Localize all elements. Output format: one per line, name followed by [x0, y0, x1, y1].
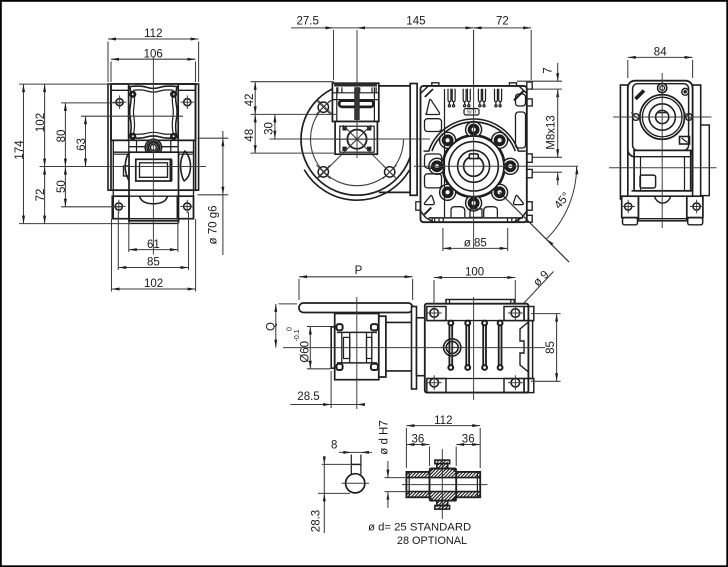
- svg-text:174: 174: [14, 140, 26, 160]
- svg-text:63: 63: [76, 138, 88, 151]
- svg-text:28.3: 28.3: [311, 510, 323, 532]
- svg-text:30: 30: [264, 122, 276, 135]
- svg-text:0: 0: [287, 327, 294, 331]
- svg-text:72: 72: [496, 15, 509, 27]
- svg-text:84: 84: [654, 47, 667, 59]
- svg-text:8: 8: [331, 440, 337, 452]
- svg-text:112: 112: [434, 415, 452, 427]
- svg-text:M8x13: M8x13: [546, 115, 558, 150]
- svg-text:Ø60: Ø60: [299, 341, 311, 363]
- svg-text:112: 112: [144, 28, 162, 40]
- svg-text:85: 85: [147, 257, 160, 269]
- svg-text:-0.1: -0.1: [294, 329, 301, 341]
- svg-text:ø d H7: ø d H7: [378, 420, 390, 455]
- svg-text:ø 85: ø 85: [464, 238, 487, 250]
- svg-text:80: 80: [56, 130, 68, 143]
- svg-text:ø d= 25 STANDARD: ø d= 25 STANDARD: [368, 522, 471, 534]
- svg-text:72: 72: [35, 189, 47, 202]
- svg-text:28.5: 28.5: [297, 391, 319, 403]
- svg-text:50: 50: [56, 180, 68, 193]
- svg-text:102: 102: [144, 278, 163, 290]
- svg-text:Q: Q: [266, 322, 278, 331]
- svg-text:ø 70 g6: ø 70 g6: [208, 206, 220, 245]
- svg-text:102: 102: [35, 113, 47, 132]
- svg-text:36: 36: [462, 434, 475, 446]
- svg-text:P: P: [355, 265, 363, 277]
- svg-text:42: 42: [244, 94, 256, 107]
- svg-text:28 OPTIONAL: 28 OPTIONAL: [397, 535, 467, 547]
- svg-text:48: 48: [244, 129, 256, 142]
- svg-text:36: 36: [412, 434, 425, 446]
- svg-text:7: 7: [543, 67, 555, 73]
- svg-text:100: 100: [465, 267, 484, 279]
- svg-text:SITI: SITI: [467, 110, 477, 116]
- svg-text:27.5: 27.5: [297, 15, 319, 27]
- svg-text:145: 145: [406, 15, 425, 27]
- svg-text:85: 85: [545, 341, 557, 354]
